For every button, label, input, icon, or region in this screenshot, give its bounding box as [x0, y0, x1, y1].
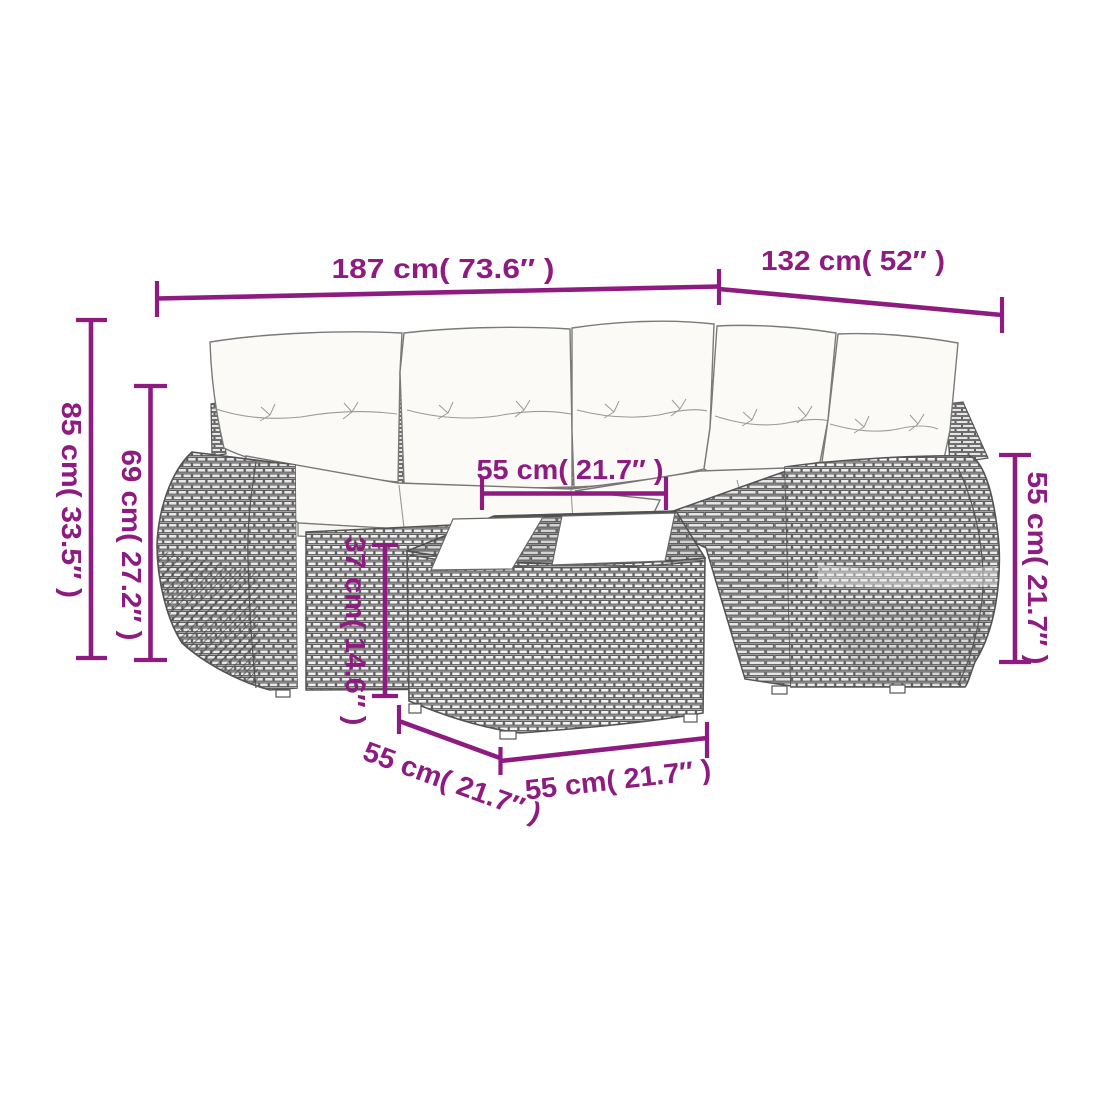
svg-text:55 cm( 21.7″ ): 55 cm( 21.7″ )	[477, 454, 664, 485]
svg-text:187 cm( 73.6″ ): 187 cm( 73.6″ )	[332, 253, 555, 284]
svg-text:132 cm( 52″ ): 132 cm( 52″ )	[761, 245, 945, 276]
svg-text:85 cm( 33.5″ ): 85 cm( 33.5″ )	[56, 402, 87, 598]
svg-text:55 cm( 21.7″ ): 55 cm( 21.7″ )	[1022, 472, 1053, 665]
svg-text:69 cm( 27.2″ ): 69 cm( 27.2″ )	[116, 450, 147, 641]
svg-text:37 cm( 14.6″ ): 37 cm( 14.6″ )	[340, 537, 371, 726]
